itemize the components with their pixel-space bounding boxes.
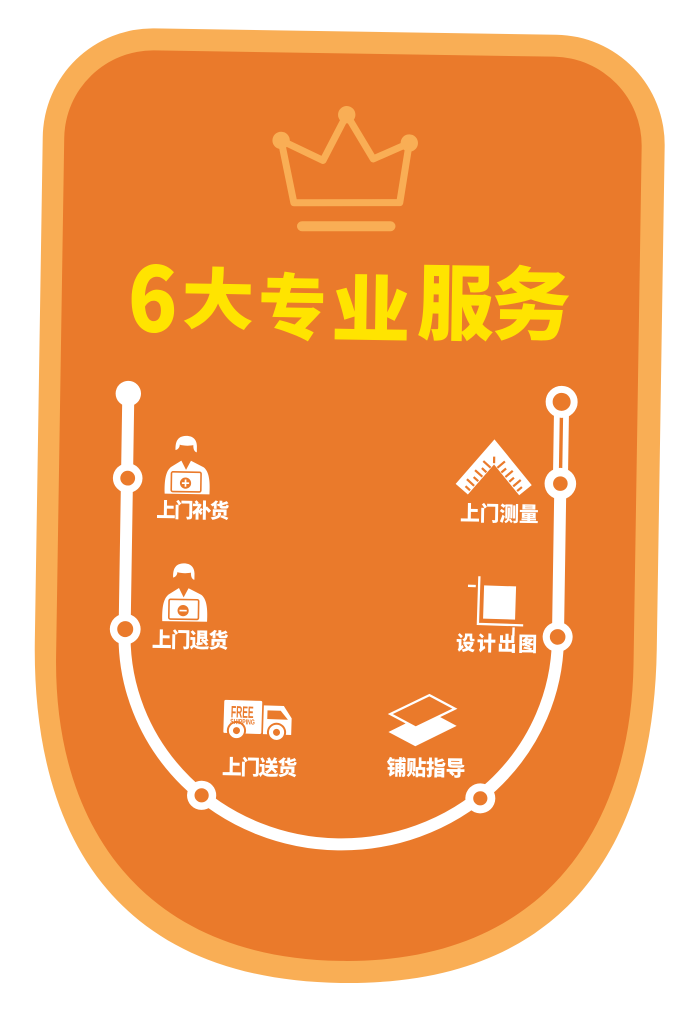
svg-text:SHIPPING: SHIPPING [230, 717, 255, 727]
